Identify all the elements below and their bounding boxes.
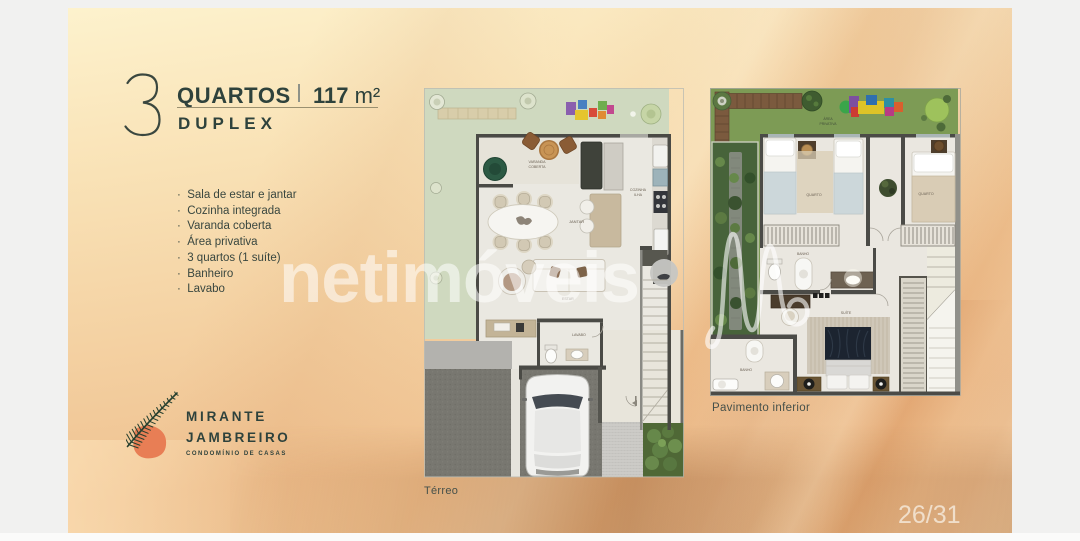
- svg-text:COBERTA: COBERTA: [528, 165, 546, 169]
- svg-text:QUARTO: QUARTO: [918, 192, 933, 196]
- svg-text:JANTAR: JANTAR: [569, 219, 584, 224]
- svg-text:LAVABO: LAVABO: [572, 333, 586, 337]
- svg-text:VARANDA: VARANDA: [528, 160, 546, 164]
- svg-text:COZINHA: COZINHA: [630, 188, 647, 192]
- svg-text:ILHA: ILHA: [634, 193, 643, 197]
- svg-text:QUARTO: QUARTO: [806, 193, 821, 197]
- svg-text:ÁREA: ÁREA: [823, 117, 833, 121]
- svg-text:SUÍTE: SUÍTE: [841, 311, 852, 315]
- svg-text:BANHO: BANHO: [740, 368, 752, 372]
- svg-text:PRIVATIVA: PRIVATIVA: [820, 122, 838, 126]
